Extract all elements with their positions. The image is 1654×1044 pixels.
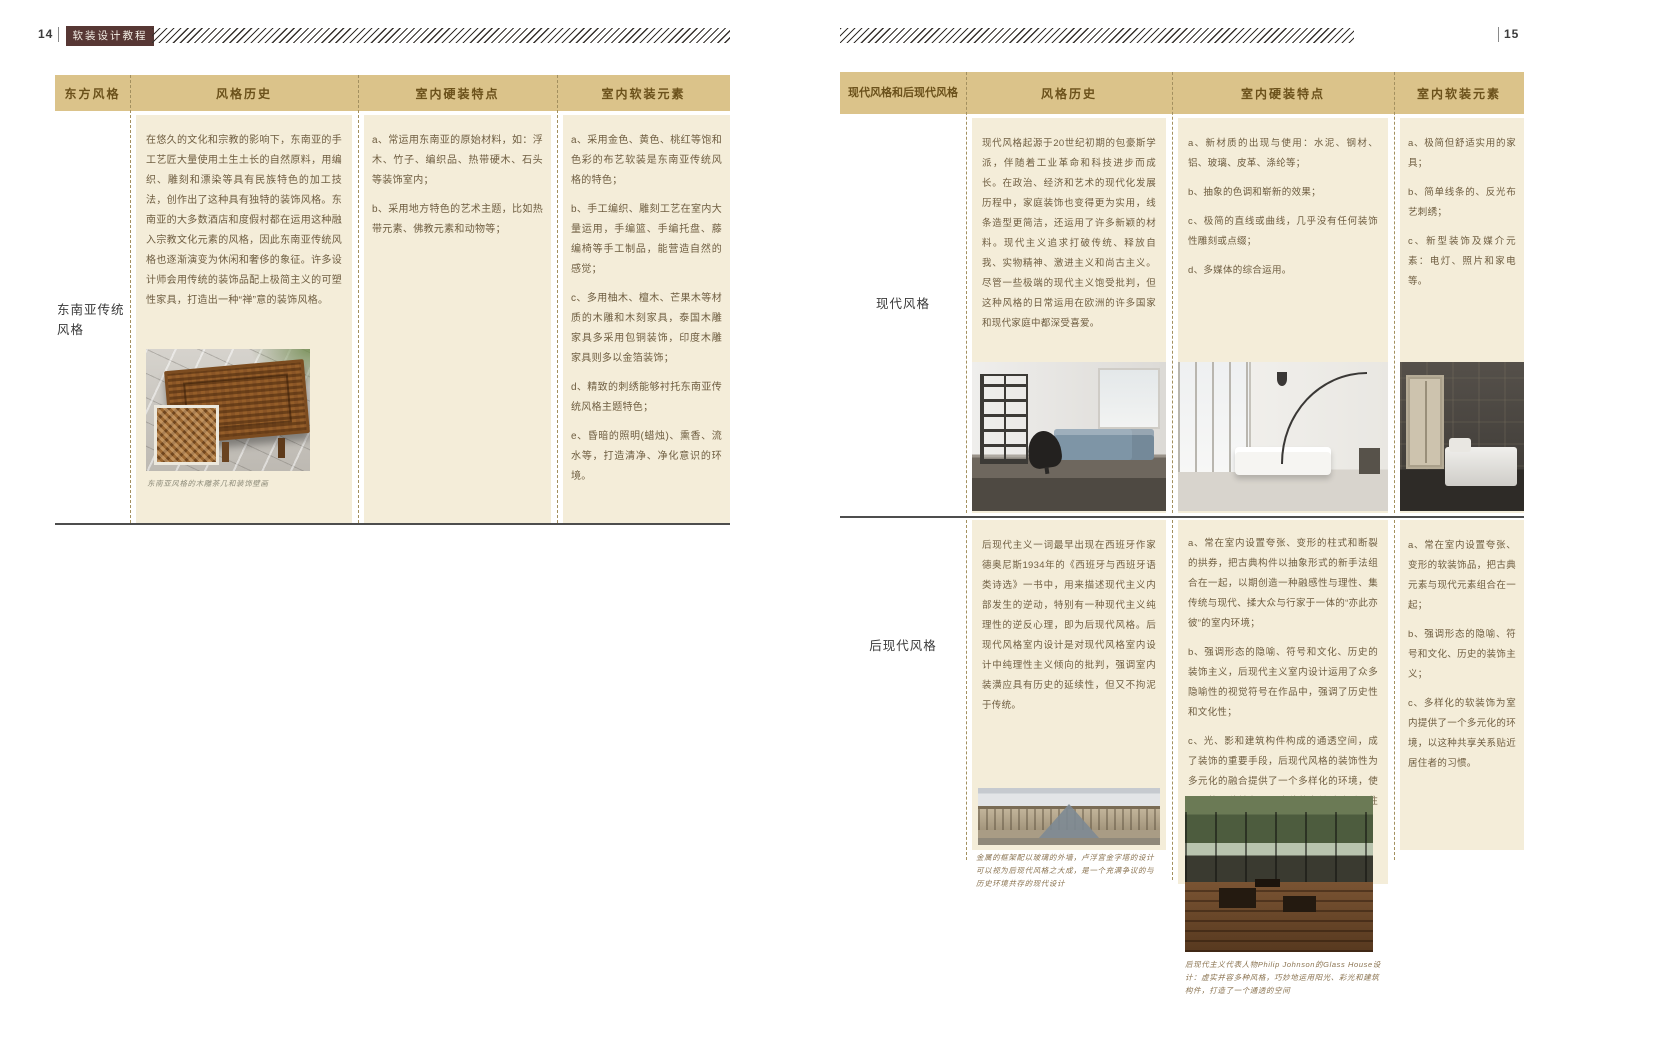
hardscape-item: c、极简的直线或曲线，几乎没有任何装饰性雕刻或点缀； [1188, 212, 1378, 252]
right-col-divider-3a [1394, 72, 1395, 513]
hardscape-item: b、抽象的色调和崭新的效果； [1188, 183, 1378, 203]
photo-carved-teak-table [146, 349, 310, 471]
bed [1445, 447, 1517, 486]
softscape-item: d、精致的刺绣能够衬托东南亚传统风格主题特色； [571, 378, 722, 418]
right-col-divider-1b [966, 520, 967, 860]
left-page-number: 14 [38, 27, 53, 41]
softscape-item: c、多样化的软装饰为室内提供了一个多元化的环境，以这种共享关系贴近居住者的习惯。 [1408, 694, 1516, 774]
right-header-col-hardscape: 室内硬装特点 [1172, 72, 1394, 114]
right-page-number-divider [1498, 27, 1499, 42]
hardscape-item: d、多媒体的综合运用。 [1188, 261, 1378, 281]
glass-pyramid [1039, 804, 1099, 838]
right-table-header: 现代风格和后现代风格 风格历史 室内硬装特点 室内软装元素 [840, 72, 1524, 114]
softscape-item: a、常在室内设置夸张、变形的软装饰品，把古典元素与现代元素组合在一起； [1408, 536, 1516, 616]
hardscape-item: b、采用地方特色的艺术主题，比如热带元素、佛教元素和动物等； [372, 200, 543, 240]
hardscape-item: a、常在室内设置夸张、变形的柱式和断裂的拱券，把古典构件以抽象形式的新手法组合在… [1188, 534, 1378, 634]
carving-closeup-inset [154, 405, 219, 465]
left-cell-softscape: a、采用金色、黄色、桃红等饱和色彩的布艺软装是东南亚传统风格的特色； b、手工编… [563, 115, 730, 523]
window [1098, 368, 1160, 429]
hardscape-item: b、强调形态的隐喻、符号和文化、历史的装饰主义，后现代主义室内设计运用了众多隐喻… [1188, 643, 1378, 723]
courtyard-ground [978, 838, 1160, 845]
softscape-item: e、昏暗的照明(蜡烛)、熏香、流水等，打造清净、净化意识的环境。 [571, 427, 722, 487]
left-row-label: 东南亚传统风格 [57, 300, 129, 340]
right-col-divider-1a [966, 72, 967, 513]
book-title-badge: 软装设计教程 [66, 26, 154, 46]
book-spread: 14 软装设计教程 15 东方风格 风格历史 室内硬装特点 室内软装元素 东南亚… [0, 0, 1654, 1044]
photo-glass-house-interior [1185, 796, 1373, 952]
modern-history-paragraph: 现代风格起源于20世纪初期的包豪斯学派，伴随着工业革命和科技进步而成长。在政治、… [982, 134, 1156, 334]
right-header-col-softscape: 室内软装元素 [1394, 72, 1524, 114]
photo-louvre-pyramid [978, 788, 1160, 845]
photo-modern-dark-bedroom [1400, 362, 1524, 511]
row-label-postmodern: 后现代风格 [840, 636, 966, 656]
glasshouse-photo-caption: 后现代主义代表人物Philip Johnson的Glass House设计：虚实… [1185, 958, 1381, 997]
bookshelf [980, 374, 1029, 464]
left-header-col-hardscape: 室内硬装特点 [358, 75, 557, 111]
right-page-number: 15 [1504, 27, 1519, 41]
hardscape-item: a、新材质的出现与使用：水泥、钢材、铝、玻璃、皮革、涤纶等； [1188, 134, 1378, 174]
arc-floor-lamp [1281, 372, 1367, 463]
louvre-photo-caption: 金属的框架配以玻璃的外墙，卢浮宫金字塔的设计可以视为后现代风格之大成，是一个充满… [976, 851, 1162, 890]
left-col-divider-1 [130, 75, 131, 523]
side-table [1359, 448, 1380, 473]
hardscape-item: a、常运用东南亚的原始材料，如：浮木、竹子、编织品、热带硬木、石头等装饰室内； [372, 131, 543, 191]
left-header-col-history: 风格历史 [130, 75, 358, 111]
left-col-divider-2 [358, 75, 359, 523]
brick-floor [1185, 882, 1373, 952]
left-header-col-softscape: 室内软装元素 [557, 75, 730, 111]
right-row-divider-rule [840, 516, 1524, 518]
cell-postmodern-softscape: a、常在室内设置夸张、变形的软装饰品，把古典元素与现代元素组合在一起； b、强调… [1400, 520, 1524, 850]
glass-wall-mullions [1185, 812, 1373, 887]
softscape-item: b、简单线条的、反光布艺刺绣； [1408, 183, 1516, 223]
softscape-item: b、手工编织、雕刻工艺在室内大量运用，手编篮、手编托盘、藤编椅等手工制品，能营造… [571, 200, 722, 280]
right-col-divider-3b [1394, 520, 1395, 860]
left-header-col-style: 东方风格 [55, 75, 130, 111]
left-history-paragraph: 在悠久的文化和宗教的影响下，东南亚的手工艺匠大量使用土生土长的自然原料，用编织、… [146, 131, 342, 311]
postmodern-history-paragraph: 后现代主义一词最早出现在西班牙作家德奥尼斯1934年的《西班牙与西班牙语类诗选》… [982, 536, 1156, 716]
row-label-modern: 现代风格 [840, 294, 966, 314]
right-header-col-style: 现代风格和后现代风格 [840, 72, 974, 114]
blue-sofa [1054, 429, 1155, 460]
softscape-item: a、极简但舒适实用的家具； [1408, 134, 1516, 174]
right-header-col-history: 风格历史 [966, 72, 1172, 114]
softscape-item: a、采用金色、黄色、桃红等饱和色彩的布艺软装是东南亚传统风格的特色； [571, 131, 722, 191]
photo-modern-white-room [1178, 362, 1388, 511]
left-col-divider-3 [557, 75, 558, 523]
left-table-bottom-rule [55, 523, 730, 525]
left-hatch-band [152, 28, 730, 43]
photo-modern-living-room [972, 362, 1166, 511]
furniture-silhouettes [1219, 888, 1257, 908]
softscape-item: b、强调形态的隐喻、符号和文化、历史的装饰主义； [1408, 625, 1516, 685]
right-col-divider-2a [1172, 72, 1173, 513]
softscape-item: c、多用柚木、檀木、芒果木等材质的木雕和木刻家具，泰国木雕家具多采用包铜装饰，印… [571, 289, 722, 369]
right-col-divider-2b [1172, 520, 1173, 880]
left-table-header: 东方风格 风格历史 室内硬装特点 室内软装元素 [55, 75, 730, 111]
left-cell-hardscape: a、常运用东南亚的原始材料，如：浮木、竹子、编织品、热带硬木、石头等装饰室内； … [364, 115, 551, 523]
pale-wardrobe [1406, 375, 1443, 468]
left-photo-caption: 东南亚风格的木雕茶几和装饰壁画 [147, 477, 327, 490]
right-hatch-band [840, 28, 1354, 43]
left-page-number-divider [58, 27, 59, 42]
softscape-item: c、新型装饰及媒介元素：电灯、照片和家电等。 [1408, 232, 1516, 292]
